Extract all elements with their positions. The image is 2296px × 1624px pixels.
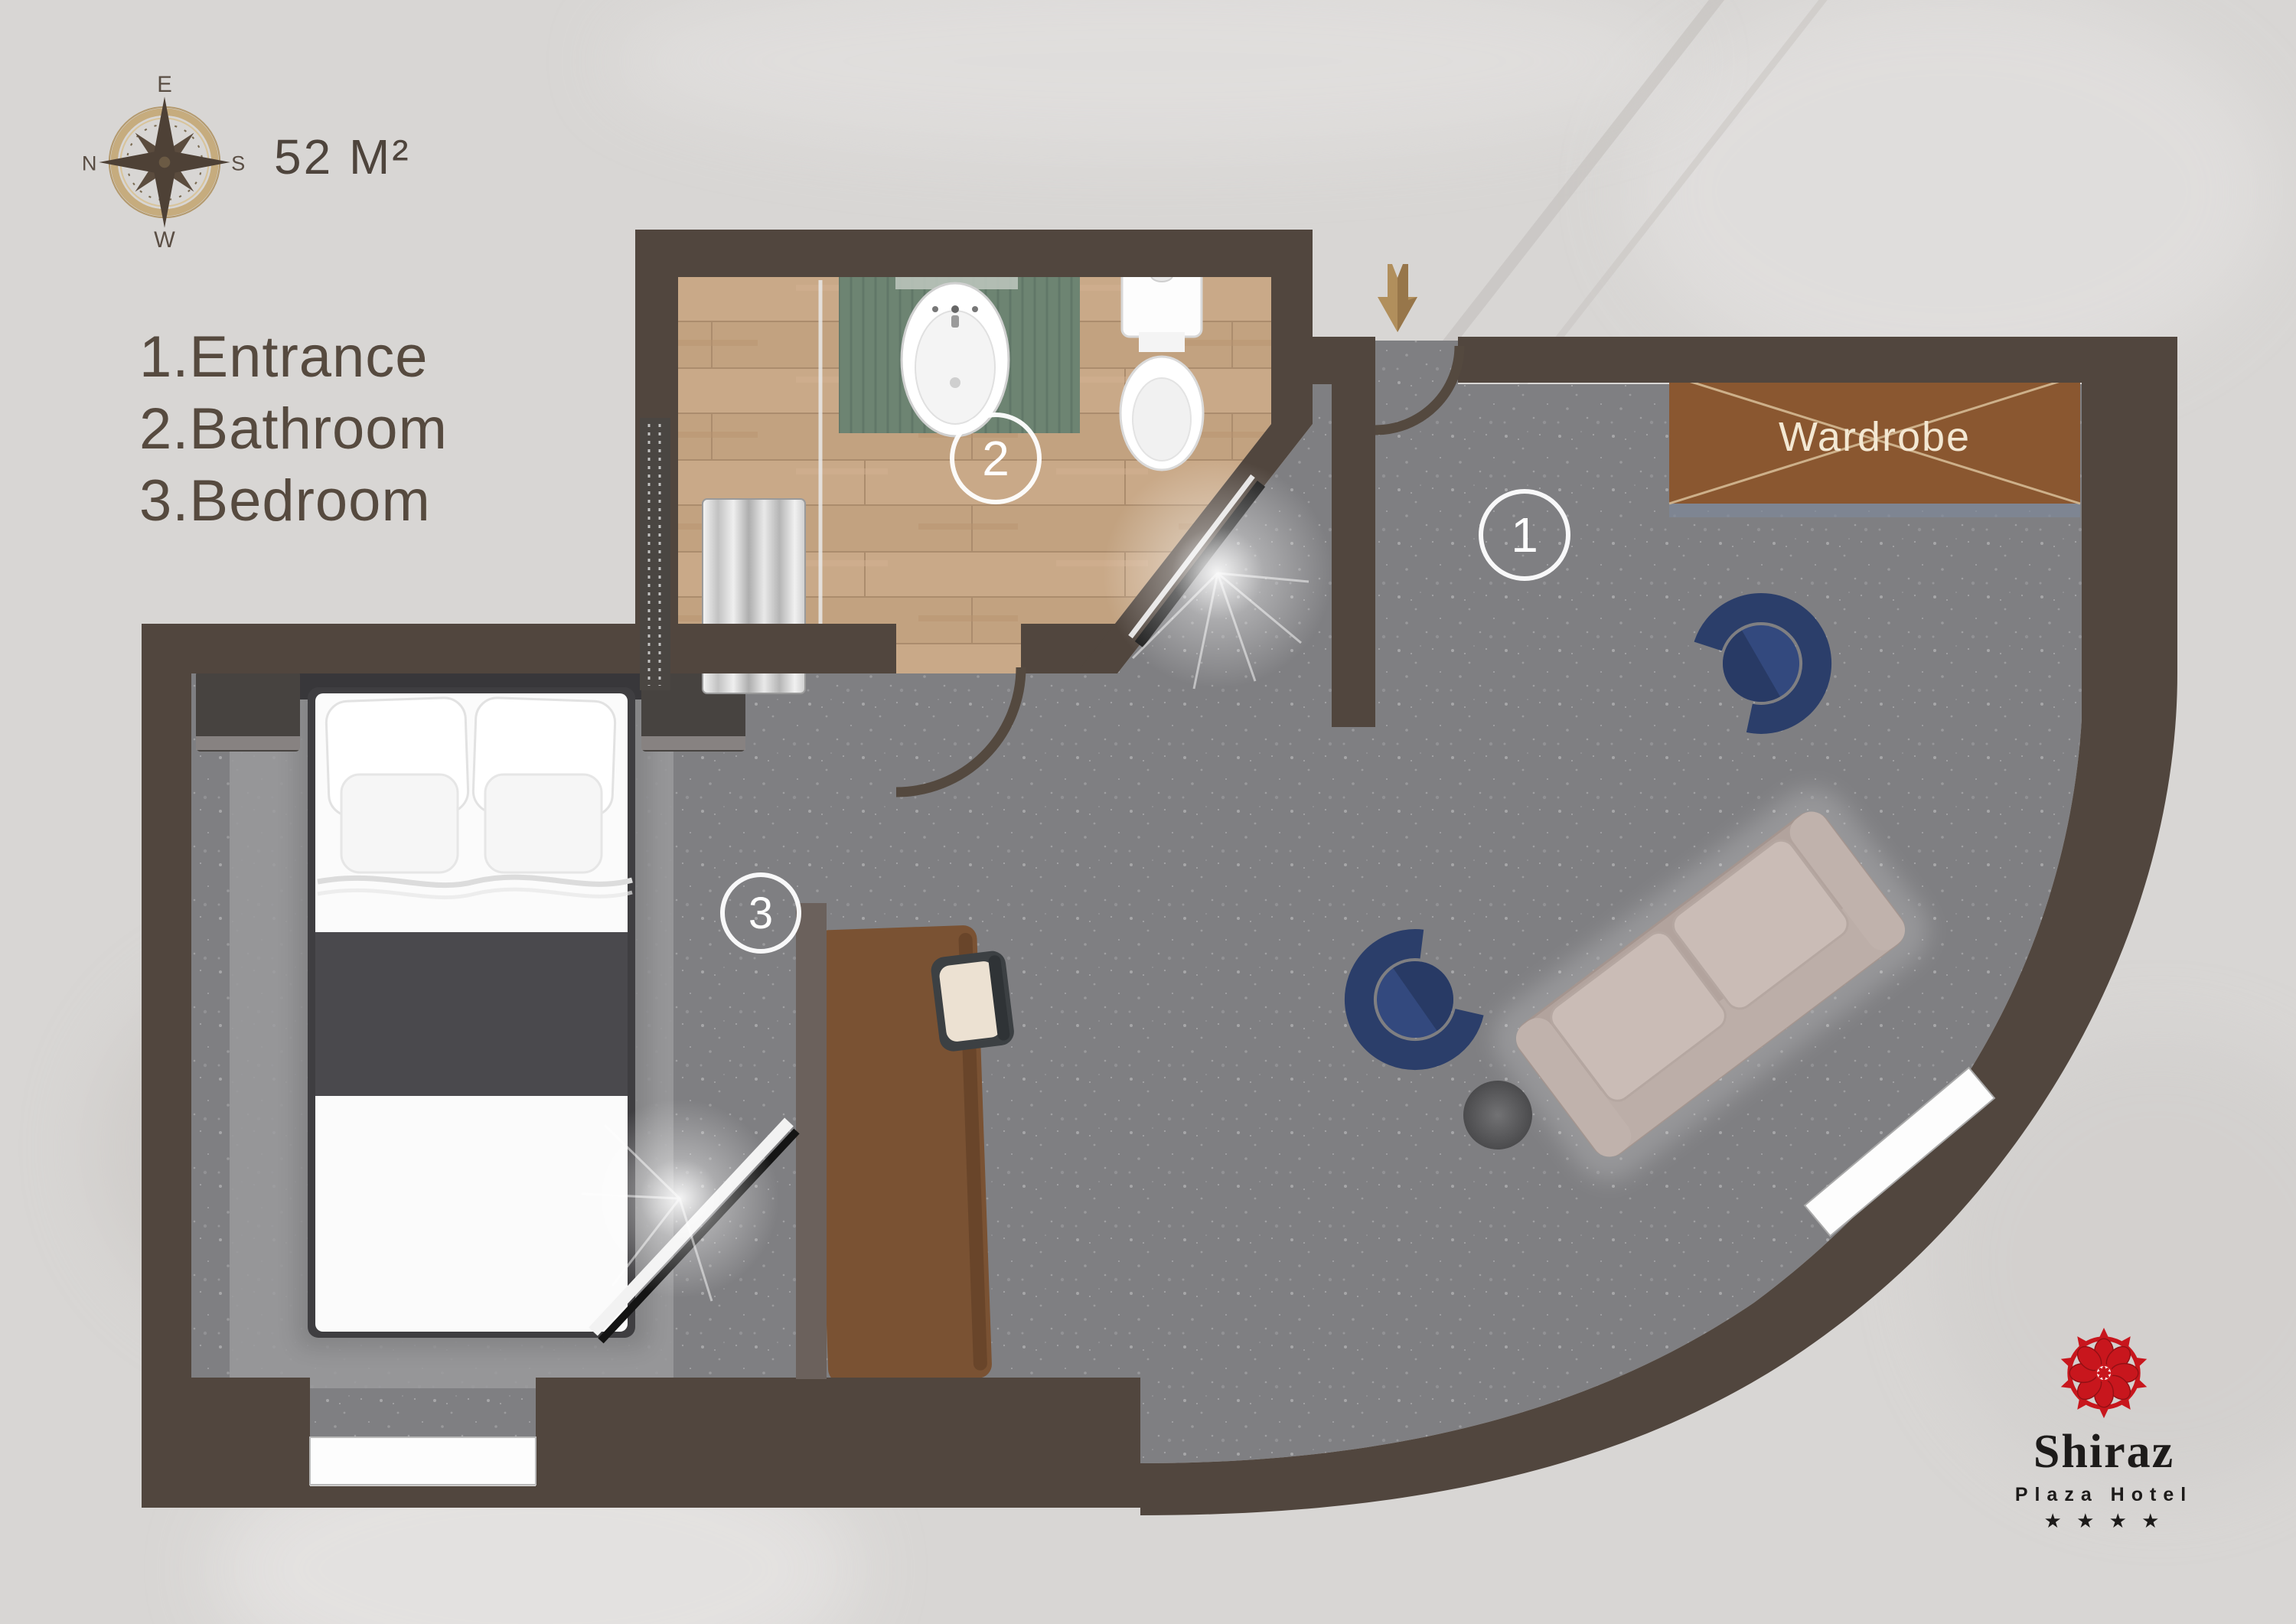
hotel-stars: ★ ★ ★ ★ [1962, 1509, 2245, 1533]
legend-entrance: 1.Entrance [139, 321, 448, 393]
nightstand-left [196, 670, 300, 752]
marker-bathroom: 2 [950, 413, 1042, 504]
marker-entrance: 1 [1479, 489, 1570, 581]
marker-bedroom-number: 3 [748, 888, 773, 939]
compass-rose: E S W N [77, 74, 253, 250]
desk-chair [930, 950, 1016, 1053]
marker-bathroom-number: 2 [982, 430, 1009, 487]
hotel-name: Shiraz [1962, 1425, 2245, 1479]
bed-blanket [315, 932, 628, 1096]
legend-bedroom: 3.Bedroom [139, 465, 448, 537]
marker-bedroom: 3 [720, 872, 801, 954]
bathroom-vanity [839, 272, 1080, 436]
interior-wall-bedroom [796, 903, 827, 1379]
legend-bathroom: 2.Bathroom [139, 393, 448, 465]
compass-right-letter: S [231, 151, 245, 174]
wardrobe-label: Wardrobe [1669, 413, 2080, 461]
hotel-subtitle: Plaza Hotel [1962, 1484, 2245, 1506]
marker-entrance-number: 1 [1511, 507, 1538, 563]
bathroom-glass-door [1103, 458, 1332, 689]
hotel-logo: Shiraz Plaza Hotel ★ ★ ★ ★ [1962, 1326, 2245, 1533]
compass-top-letter: E [157, 74, 172, 97]
compass-left-letter: N [82, 151, 97, 174]
floorplan-drawing [0, 0, 2296, 1624]
legend: 1.Entrance 2.Bathroom 3.Bedroom [139, 321, 448, 537]
floorplan-page: E S W N 52 M² 1.Entrance 2.Bathroom 3.Be… [0, 0, 2296, 1624]
bedroom-window [310, 1437, 536, 1485]
area-label: 52 M² [274, 129, 411, 185]
side-table [1463, 1081, 1532, 1150]
shower-drain [640, 418, 670, 690]
compass-bottom-letter: W [154, 228, 175, 250]
hotel-logo-flower-icon [2056, 1326, 2151, 1420]
